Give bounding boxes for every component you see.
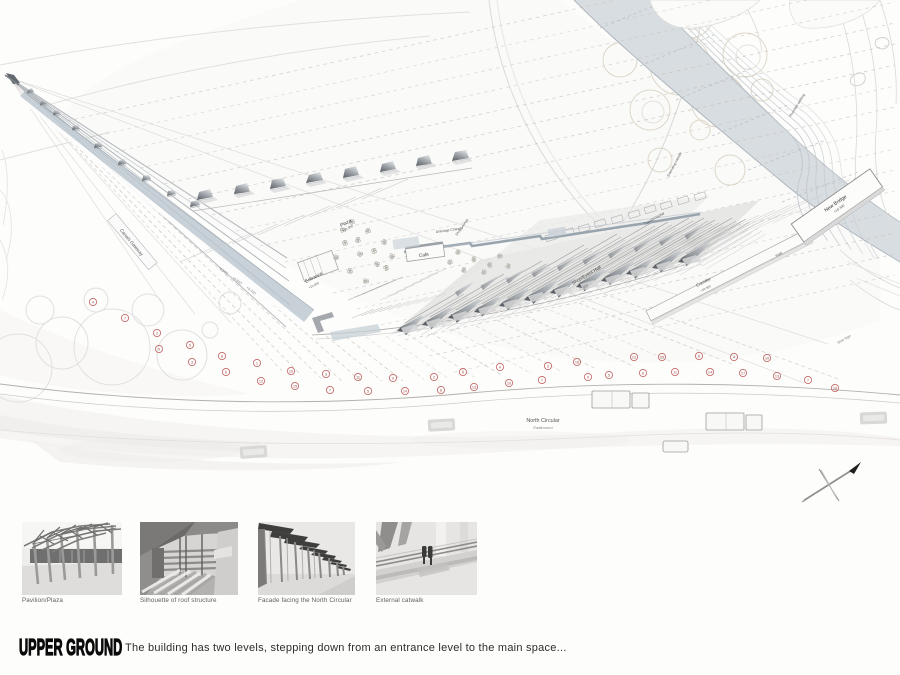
svg-text:9: 9 [392,376,394,381]
svg-text:7: 7 [124,316,126,321]
svg-text:15: 15 [660,355,664,360]
svg-text:9: 9 [587,375,589,380]
svg-text:6: 6 [698,354,700,359]
svg-text:3: 3 [191,360,193,365]
svg-text:9: 9 [158,347,160,352]
svg-text:13: 13 [472,385,476,390]
svg-text:8: 8 [642,371,644,376]
svg-text:2: 2 [156,331,158,336]
svg-text:8: 8 [221,354,223,359]
svg-text:13: 13 [775,374,779,379]
svg-text:Eastbound: Eastbound [533,425,552,430]
svg-text:7: 7 [329,388,331,393]
svg-text:1: 1 [256,361,258,366]
svg-text:7: 7 [541,378,543,383]
svg-text:North Circular: North Circular [526,418,559,424]
svg-text:5: 5 [189,343,191,348]
svg-text:12: 12 [632,355,636,360]
svg-text:11: 11 [356,375,360,380]
svg-text:7: 7 [807,378,809,383]
svg-text:6: 6 [225,370,227,375]
svg-text:11: 11 [673,370,677,375]
svg-text:3: 3 [547,364,549,369]
svg-text:15: 15 [293,384,297,389]
svg-text:3: 3 [325,372,327,377]
svg-text:5: 5 [608,373,610,378]
svg-text:2: 2 [433,375,435,380]
svg-text:6: 6 [462,370,464,375]
svg-text:12: 12 [259,379,263,384]
svg-text:17: 17 [741,371,745,376]
svg-text:5: 5 [367,389,369,394]
svg-text:18: 18 [833,386,837,391]
svg-text:16: 16 [575,360,579,365]
svg-text:8: 8 [440,388,442,393]
